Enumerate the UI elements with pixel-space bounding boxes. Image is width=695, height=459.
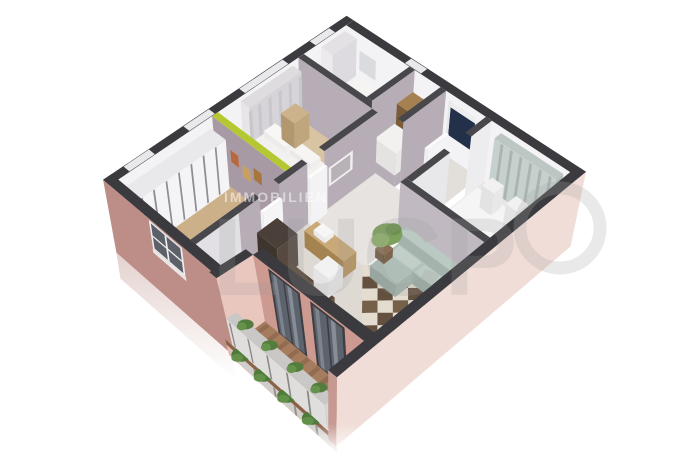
svg-text:LUCP: LUCP	[212, 196, 519, 319]
